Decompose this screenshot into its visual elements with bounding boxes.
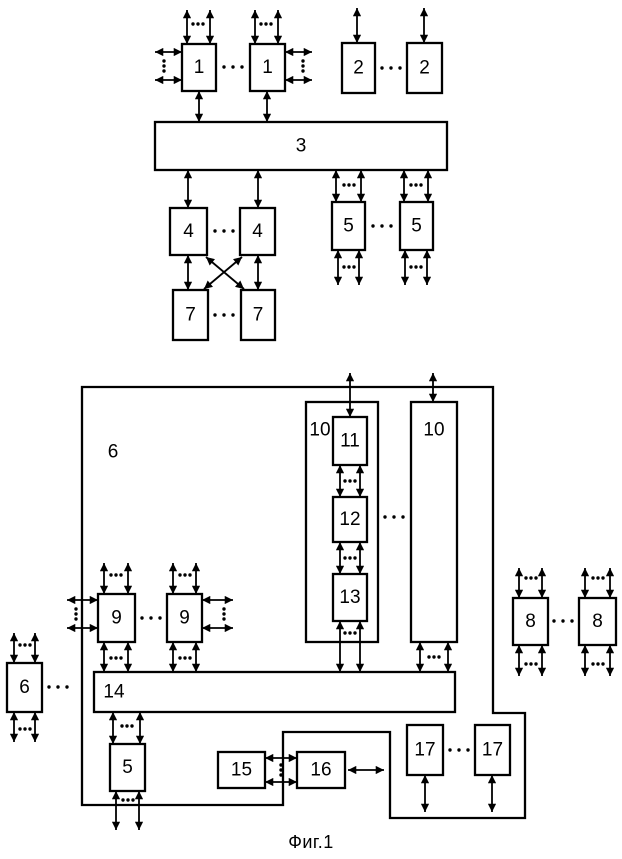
ellipsis-dots	[392, 515, 395, 518]
ellipsis-dots	[222, 612, 225, 615]
ellipsis-dots	[596, 576, 599, 579]
ellipsis-dots	[348, 631, 351, 634]
ellipsis-dots	[279, 763, 282, 766]
ellipsis-dots	[401, 515, 404, 518]
label-unit-2b: 2	[419, 58, 430, 79]
ellipsis-dots	[301, 59, 304, 62]
ellipsis-dots	[601, 662, 604, 665]
ellipsis-dots	[18, 643, 21, 646]
ellipsis-dots	[570, 619, 573, 622]
ellipsis-dots	[74, 617, 77, 620]
ellipsis-dots	[419, 183, 422, 186]
ellipsis-dots	[56, 685, 59, 688]
ellipsis-dots	[23, 643, 26, 646]
label-unit-14: 14	[103, 682, 125, 703]
ellipsis-dots	[279, 768, 282, 771]
ellipsis-dots	[191, 22, 194, 25]
ellipsis-dots	[432, 655, 435, 658]
ellipsis-dots	[178, 656, 181, 659]
ellipsis-dots	[74, 607, 77, 610]
ellipsis-dots	[353, 631, 356, 634]
label-unit-17b: 17	[482, 740, 503, 761]
ellipsis-dots	[149, 616, 152, 619]
ellipsis-dots	[414, 183, 417, 186]
label-unit-4a: 4	[183, 221, 194, 242]
ellipsis-dots	[414, 265, 417, 268]
ellipsis-dots	[162, 69, 165, 72]
ellipsis-dots	[534, 576, 537, 579]
ellipsis-dots	[524, 576, 527, 579]
label-unit-9a: 9	[111, 608, 122, 629]
ellipsis-dots	[353, 556, 356, 559]
ellipsis-dots	[534, 662, 537, 665]
label-unit-6-ext: 6	[19, 677, 30, 698]
ellipsis-dots	[28, 727, 31, 730]
ellipsis-dots	[437, 655, 440, 658]
ellipsis-dots	[419, 265, 422, 268]
ellipsis-dots	[201, 22, 204, 25]
label-unit-8b: 8	[592, 611, 603, 632]
ellipsis-dots	[162, 59, 165, 62]
ellipsis-dots	[28, 643, 31, 646]
ellipsis-dots	[178, 573, 181, 576]
label-unit-10a: 10	[309, 420, 330, 441]
ellipsis-dots	[231, 229, 234, 232]
ellipsis-dots	[529, 576, 532, 579]
ellipsis-dots	[380, 66, 383, 69]
ellipsis-dots	[343, 556, 346, 559]
ellipsis-dots	[121, 798, 124, 801]
ellipsis-dots	[552, 619, 555, 622]
ellipsis-dots	[188, 656, 191, 659]
label-unit-5c: 5	[122, 757, 133, 778]
label-unit-9b: 9	[179, 608, 190, 629]
ellipsis-dots	[74, 612, 77, 615]
ellipsis-dots	[343, 631, 346, 634]
ellipsis-dots	[222, 313, 225, 316]
ellipsis-dots	[240, 65, 243, 68]
label-unit-10b: 10	[423, 420, 444, 441]
label-unit-5b: 5	[411, 216, 422, 237]
ellipsis-dots	[347, 183, 350, 186]
ellipsis-dots	[301, 64, 304, 67]
ellipsis-dots	[343, 479, 346, 482]
ellipsis-dots	[47, 685, 50, 688]
label-unit-5a: 5	[343, 216, 354, 237]
ellipsis-dots	[231, 65, 234, 68]
ellipsis-dots	[65, 685, 68, 688]
ellipsis-dots	[348, 479, 351, 482]
label-unit-12: 12	[339, 509, 360, 530]
ellipsis-dots	[259, 22, 262, 25]
ellipsis-dots	[342, 183, 345, 186]
figure-caption: Фиг.1	[0, 832, 622, 853]
ellipsis-dots	[222, 607, 225, 610]
ellipsis-dots	[342, 265, 345, 268]
label-unit-7b: 7	[253, 305, 264, 326]
label-unit-1a: 1	[194, 57, 205, 78]
ellipsis-dots	[353, 479, 356, 482]
ellipsis-dots	[301, 69, 304, 72]
ellipsis-dots	[348, 556, 351, 559]
ellipsis-dots	[196, 22, 199, 25]
ellipsis-dots	[371, 224, 374, 227]
ellipsis-dots	[601, 576, 604, 579]
label-unit-7a: 7	[185, 305, 196, 326]
ellipsis-dots	[398, 66, 401, 69]
ellipsis-dots	[131, 798, 134, 801]
ellipsis-dots	[109, 573, 112, 576]
double-arrow-21	[204, 257, 242, 289]
ellipsis-dots	[114, 656, 117, 659]
ellipsis-dots	[119, 656, 122, 659]
label-unit-1b: 1	[262, 57, 273, 78]
ellipsis-dots	[120, 724, 123, 727]
label-unit-4b: 4	[252, 221, 263, 242]
ellipsis-dots	[279, 773, 282, 776]
figure-canvas: 61122344557710101112139988614515161717 Ф…	[0, 0, 622, 859]
ellipsis-dots	[264, 22, 267, 25]
ellipsis-dots	[448, 748, 451, 751]
ellipsis-dots	[222, 617, 225, 620]
ellipsis-dots	[347, 265, 350, 268]
ellipsis-dots	[561, 619, 564, 622]
ellipsis-dots	[591, 662, 594, 665]
ellipsis-dots	[213, 229, 216, 232]
ellipsis-dots	[130, 724, 133, 727]
box-unit-14	[94, 672, 455, 712]
ellipsis-dots	[18, 727, 21, 730]
ellipsis-dots	[183, 573, 186, 576]
ellipsis-dots	[591, 576, 594, 579]
ellipsis-dots	[125, 724, 128, 727]
block-diagram: 61122344557710101112139988614515161717	[0, 0, 622, 859]
ellipsis-dots	[119, 573, 122, 576]
ellipsis-dots	[409, 265, 412, 268]
ellipsis-dots	[23, 727, 26, 730]
ellipsis-dots	[222, 65, 225, 68]
label-unit-6: 6	[108, 442, 119, 463]
ellipsis-dots	[114, 573, 117, 576]
double-arrow-20	[206, 257, 244, 289]
ellipsis-dots	[352, 183, 355, 186]
ellipsis-dots	[529, 662, 532, 665]
ellipsis-dots	[457, 748, 460, 751]
ellipsis-dots	[466, 748, 469, 751]
ellipsis-dots	[162, 64, 165, 67]
ellipsis-dots	[389, 66, 392, 69]
ellipsis-dots	[596, 662, 599, 665]
ellipsis-dots	[427, 655, 430, 658]
ellipsis-dots	[409, 183, 412, 186]
ellipsis-dots	[380, 224, 383, 227]
label-unit-16: 16	[310, 760, 331, 781]
ellipsis-dots	[188, 573, 191, 576]
ellipsis-dots	[383, 515, 386, 518]
label-unit-13: 13	[339, 587, 360, 608]
ellipsis-dots	[109, 656, 112, 659]
label-unit-2a: 2	[353, 58, 364, 79]
ellipsis-dots	[389, 224, 392, 227]
ellipsis-dots	[231, 313, 234, 316]
ellipsis-dots	[183, 656, 186, 659]
label-unit-8a: 8	[525, 611, 536, 632]
label-unit-15: 15	[231, 760, 252, 781]
ellipsis-dots	[213, 313, 216, 316]
ellipsis-dots	[269, 22, 272, 25]
ellipsis-dots	[140, 616, 143, 619]
ellipsis-dots	[222, 229, 225, 232]
ellipsis-dots	[158, 616, 161, 619]
label-unit-3: 3	[296, 136, 307, 157]
ellipsis-dots	[352, 265, 355, 268]
ellipsis-dots	[126, 798, 129, 801]
label-unit-11: 11	[340, 431, 360, 452]
label-unit-17a: 17	[414, 740, 435, 761]
ellipsis-dots	[524, 662, 527, 665]
